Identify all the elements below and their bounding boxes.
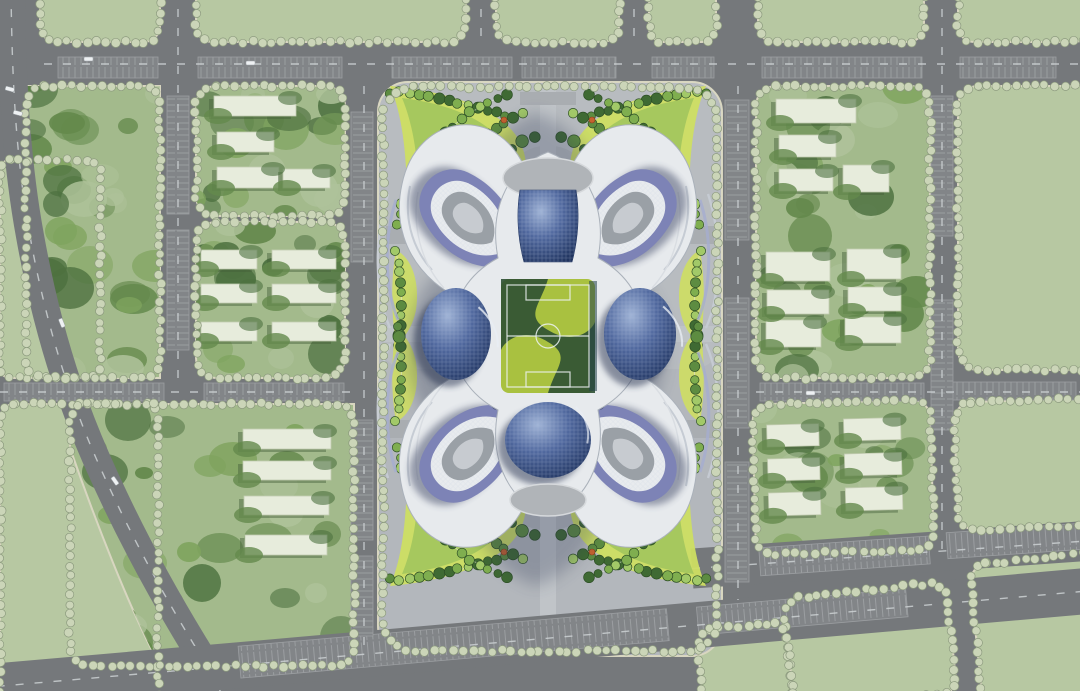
tree (89, 661, 98, 670)
tree (377, 134, 386, 143)
tree (953, 292, 961, 300)
tree (287, 82, 295, 90)
tree (379, 581, 388, 590)
tree (1054, 394, 1063, 403)
tree (21, 177, 29, 185)
ellipse (273, 180, 301, 196)
tree (379, 276, 388, 285)
tree (959, 356, 968, 365)
tree (712, 402, 720, 410)
tree (221, 81, 229, 89)
tree (926, 328, 934, 336)
tree (131, 39, 140, 48)
parking-area (392, 57, 512, 78)
tree (156, 146, 165, 155)
tree (192, 1, 200, 9)
tree (192, 303, 201, 312)
tree (9, 400, 17, 408)
tree (927, 290, 935, 298)
tree (753, 270, 762, 279)
tree (771, 81, 780, 90)
tree (66, 601, 74, 609)
tree (348, 571, 357, 580)
tree (257, 399, 266, 408)
south-platform (510, 484, 586, 516)
tree (917, 31, 925, 39)
tree (555, 647, 564, 656)
tree (926, 320, 935, 329)
tree (53, 157, 61, 165)
tree (886, 82, 894, 90)
tree (712, 136, 720, 144)
tree (751, 300, 760, 309)
tree (96, 270, 104, 278)
tree (714, 372, 722, 380)
ellipse (883, 312, 907, 326)
tree (279, 663, 288, 672)
tree (379, 513, 388, 522)
tree (155, 214, 163, 222)
tree (22, 290, 30, 298)
tree (600, 39, 608, 47)
tree (714, 355, 722, 363)
tree (43, 374, 52, 383)
tree (995, 525, 1004, 534)
tree (461, 14, 470, 23)
tree (379, 467, 387, 475)
tree (155, 679, 164, 688)
tree (713, 286, 722, 295)
tree (155, 307, 163, 315)
tree (427, 82, 435, 90)
tree (156, 163, 165, 172)
tree (378, 418, 387, 427)
tree (545, 648, 553, 656)
tree (1022, 37, 1030, 45)
tree (230, 218, 239, 227)
tree (67, 513, 75, 521)
tree (852, 397, 861, 406)
tree (180, 400, 189, 409)
tree (712, 610, 721, 619)
tree (712, 307, 720, 315)
parking-area (725, 462, 749, 582)
tree (193, 10, 201, 18)
tree (278, 82, 286, 90)
tree (153, 624, 161, 632)
canopy-blob (268, 347, 294, 369)
tree (863, 397, 872, 406)
tree (953, 409, 961, 417)
tree (790, 548, 799, 557)
tree (282, 374, 290, 382)
tree (193, 177, 201, 185)
tree (1043, 39, 1051, 47)
tree (522, 82, 531, 91)
tree (1003, 365, 1012, 374)
tree (752, 194, 760, 202)
tree (93, 400, 101, 408)
tree (395, 267, 405, 277)
tree (1006, 524, 1016, 534)
tree (153, 642, 161, 650)
tree (611, 645, 620, 654)
tree (434, 93, 445, 104)
tree (647, 32, 656, 41)
tree (157, 136, 165, 144)
tree (1011, 36, 1020, 45)
tree (154, 365, 163, 374)
tree (97, 355, 105, 363)
tree (96, 212, 104, 220)
parking-area (725, 298, 749, 428)
tree (43, 156, 52, 165)
tree (714, 572, 722, 580)
tree (22, 186, 31, 195)
tree (954, 514, 962, 522)
tree (526, 647, 535, 656)
tree (157, 174, 166, 183)
tree (20, 400, 29, 409)
tree (96, 326, 104, 334)
tree (341, 319, 350, 328)
tree (246, 400, 255, 409)
tree (380, 408, 388, 416)
tree (298, 216, 307, 225)
tree (712, 192, 720, 200)
tree (172, 662, 181, 671)
tree (196, 203, 205, 212)
tree (877, 372, 886, 381)
tree (250, 81, 258, 89)
tree (608, 83, 616, 91)
tree (379, 304, 388, 313)
tree (896, 82, 905, 91)
tree (750, 514, 759, 523)
tree (0, 621, 5, 629)
tree (901, 395, 910, 404)
tree (396, 278, 406, 288)
tree (108, 373, 117, 382)
tree (748, 438, 757, 447)
tree (238, 400, 247, 409)
canopy-blob (270, 588, 300, 608)
tree-block (191, 216, 353, 378)
glass-edge (589, 281, 597, 391)
tree (907, 374, 915, 382)
tree (833, 398, 842, 407)
tree (165, 663, 173, 671)
tree (822, 39, 831, 48)
tree (753, 10, 762, 19)
tree (349, 514, 357, 522)
tree (927, 233, 936, 242)
tree (748, 465, 757, 474)
tree (153, 519, 161, 527)
tree (380, 190, 388, 198)
tree (644, 3, 653, 12)
tree (108, 662, 116, 670)
tree (0, 368, 5, 377)
tree (954, 254, 962, 262)
tree (584, 646, 592, 654)
tree (268, 219, 277, 228)
tree (267, 39, 275, 47)
tree (925, 98, 933, 106)
tree (152, 88, 160, 96)
tree (1001, 38, 1009, 46)
tree (1041, 367, 1049, 375)
tree (21, 273, 30, 282)
tree (631, 647, 640, 656)
tree (540, 38, 549, 47)
tree (146, 372, 155, 381)
tree (326, 82, 334, 90)
tree (401, 646, 410, 655)
ellipse (204, 108, 232, 124)
tree (156, 259, 164, 267)
tree (922, 89, 931, 98)
tree (380, 343, 389, 352)
tree (713, 21, 722, 30)
tree (157, 316, 165, 324)
tree (274, 399, 282, 407)
tree (153, 472, 162, 481)
tree (954, 119, 962, 127)
tree (191, 126, 200, 135)
tree (713, 346, 721, 354)
tree (638, 84, 646, 92)
canopy-blob (194, 455, 226, 477)
tree (154, 27, 162, 35)
tree (65, 533, 73, 541)
tree (22, 263, 31, 272)
tree (764, 37, 773, 46)
tree (531, 39, 539, 47)
tree (74, 402, 82, 410)
tree (926, 242, 935, 251)
tree (713, 267, 721, 275)
tree (339, 198, 348, 207)
tree (252, 661, 260, 669)
tree (790, 81, 799, 90)
tree (615, 18, 624, 27)
tree (692, 37, 700, 45)
tree (378, 314, 387, 323)
tree (317, 81, 326, 90)
tree (0, 302, 6, 311)
tree (1031, 81, 1039, 89)
tree (955, 348, 963, 356)
tree (0, 535, 5, 543)
tree (926, 195, 935, 204)
ellipse (207, 144, 235, 160)
tree (784, 39, 792, 47)
parking-area (167, 96, 189, 214)
tree (498, 646, 506, 654)
tree (67, 524, 75, 532)
tree (97, 232, 106, 241)
tree (992, 82, 1000, 90)
tree (436, 82, 445, 91)
canopy-blob (183, 564, 221, 602)
tree (665, 83, 674, 92)
parking-area (762, 57, 922, 78)
tree (753, 175, 762, 184)
tree (750, 339, 759, 348)
tree (1032, 365, 1041, 374)
parking-area (522, 57, 616, 78)
tree (241, 218, 249, 226)
canopy-blob (118, 118, 138, 134)
tree (713, 564, 722, 573)
tree (308, 39, 316, 47)
tree (927, 222, 935, 230)
tree (965, 363, 973, 371)
tree (395, 259, 403, 267)
tree (153, 567, 162, 576)
tree (191, 311, 200, 320)
tree (773, 37, 782, 46)
tree (317, 217, 326, 226)
tree (0, 650, 6, 659)
tree (756, 364, 765, 373)
tree (640, 648, 649, 657)
tree (210, 38, 219, 47)
tree (67, 640, 75, 648)
ellipse (262, 295, 290, 311)
tree (543, 82, 551, 90)
tree (1040, 81, 1048, 89)
tree (126, 662, 135, 671)
tree (711, 248, 720, 257)
tree (1050, 82, 1059, 91)
tree (155, 652, 164, 661)
tree (203, 662, 212, 671)
tree (713, 498, 722, 507)
tree (703, 37, 712, 46)
tree (0, 591, 5, 599)
tree (159, 401, 168, 410)
tree (156, 336, 164, 344)
tree (581, 82, 589, 90)
tree (1021, 364, 1030, 373)
tree (212, 219, 220, 227)
tree (712, 210, 721, 219)
tree (349, 496, 357, 504)
tree (96, 194, 104, 202)
tree (1015, 397, 1024, 406)
ellipse (239, 317, 263, 331)
tree (337, 37, 345, 45)
tree (22, 223, 31, 232)
tree (751, 485, 760, 494)
tree (95, 242, 104, 251)
tree (194, 361, 202, 369)
tree (23, 118, 31, 126)
tree (615, 7, 624, 16)
tree (954, 157, 962, 165)
tree (507, 112, 518, 123)
tree (841, 547, 849, 555)
tree (111, 38, 120, 47)
tree (218, 401, 226, 409)
tree (713, 439, 722, 448)
tree (485, 84, 494, 93)
tree (955, 175, 963, 183)
ellipse (256, 127, 280, 141)
tree (750, 427, 758, 435)
tree (712, 154, 720, 162)
parking-area (760, 383, 924, 401)
tree (154, 241, 162, 249)
tree (751, 222, 759, 230)
tree (411, 648, 419, 656)
ellipse (318, 245, 342, 259)
tree (449, 646, 458, 655)
tree (751, 535, 759, 543)
tree (378, 561, 386, 569)
tree (65, 504, 74, 513)
tree (755, 543, 763, 551)
tree (753, 204, 761, 212)
tree (549, 39, 558, 48)
tree (95, 365, 104, 374)
tree (354, 36, 363, 45)
tree (193, 146, 201, 154)
tree (83, 38, 92, 47)
tree (803, 38, 812, 47)
tree (873, 398, 881, 406)
tree (341, 190, 349, 198)
tree (464, 107, 474, 117)
tree (349, 524, 357, 532)
tree (983, 81, 991, 89)
tree (0, 667, 5, 676)
tree (67, 571, 75, 579)
tree (950, 445, 959, 454)
tree (0, 255, 5, 263)
tree (952, 436, 960, 444)
tree (0, 515, 6, 524)
tree (154, 461, 162, 469)
tree (857, 81, 865, 89)
tree (121, 37, 130, 46)
tree (22, 244, 30, 252)
tree (751, 242, 760, 251)
tree (952, 148, 961, 157)
tree (439, 646, 447, 654)
tree (490, 1, 499, 10)
tree (21, 195, 29, 203)
tree (21, 139, 30, 148)
ellipse (262, 333, 290, 349)
tree (926, 136, 935, 145)
tree (201, 221, 210, 230)
car (806, 391, 815, 395)
tree (502, 35, 511, 44)
tree (153, 539, 161, 547)
ellipse (239, 279, 263, 293)
tree (488, 648, 496, 656)
tree (1063, 395, 1071, 403)
tree (274, 373, 282, 381)
tree (377, 390, 386, 399)
tree (870, 548, 878, 556)
tree (190, 292, 199, 301)
tree (765, 401, 773, 409)
tree (646, 83, 655, 92)
